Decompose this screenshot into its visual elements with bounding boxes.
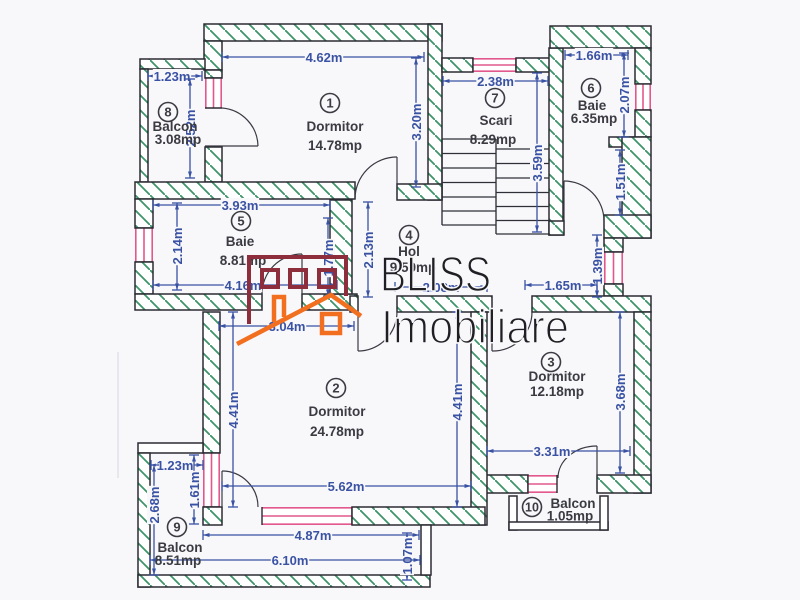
svg-text:8.29mp: 8.29mp [470, 132, 517, 147]
svg-text:7: 7 [491, 91, 498, 106]
svg-text:Dormitor: Dormitor [529, 369, 587, 384]
svg-text:9: 9 [173, 520, 180, 535]
svg-text:1.23m: 1.23m [154, 69, 191, 84]
svg-text:24.78mp: 24.78mp [310, 424, 364, 439]
svg-text:1.66m: 1.66m [576, 48, 613, 63]
svg-text:4.41m: 4.41m [226, 392, 241, 429]
svg-text:6.35mp: 6.35mp [571, 111, 618, 126]
svg-text:10: 10 [525, 501, 539, 515]
svg-text:14.78mp: 14.78mp [308, 138, 362, 153]
svg-text:3.20m: 3.20m [409, 104, 424, 141]
svg-text:3.59m: 3.59m [530, 145, 545, 182]
svg-text:1.07m: 1.07m [400, 538, 415, 575]
svg-text:1.51m: 1.51m [613, 164, 628, 201]
svg-text:3.08mp: 3.08mp [155, 132, 202, 147]
svg-text:3.68m: 3.68m [613, 374, 628, 411]
svg-text:2.07m: 2.07m [617, 77, 632, 114]
svg-text:Scari: Scari [479, 113, 512, 128]
svg-text:BLISS: BLISS [380, 248, 491, 302]
svg-text:5.62m: 5.62m [328, 479, 365, 494]
svg-text:2.68m: 2.68m [147, 487, 162, 524]
svg-text:1.39m: 1.39m [590, 248, 605, 285]
svg-text:1.23m: 1.23m [157, 458, 194, 473]
svg-text:1: 1 [326, 96, 333, 111]
svg-text:4.41m: 4.41m [450, 384, 465, 421]
svg-text:Imobiliare: Imobiliare [381, 300, 569, 353]
svg-text:2.13m: 2.13m [361, 232, 376, 269]
svg-text:1.61m: 1.61m [187, 472, 202, 509]
svg-text:3: 3 [547, 355, 554, 370]
svg-text:1.65m: 1.65m [545, 278, 582, 293]
svg-text:6.10m: 6.10m [272, 553, 309, 568]
svg-text:8: 8 [164, 105, 171, 120]
svg-text:Dormitor: Dormitor [307, 119, 365, 134]
svg-text:4: 4 [405, 228, 413, 243]
svg-text:Dormitor: Dormitor [309, 404, 367, 419]
svg-text:12.18mp: 12.18mp [530, 384, 584, 399]
svg-text:8.51mp: 8.51mp [155, 553, 202, 568]
svg-text:4.16m: 4.16m [225, 278, 262, 293]
svg-text:1.05mp: 1.05mp [547, 509, 594, 524]
svg-text:2.14m: 2.14m [170, 228, 185, 265]
svg-text:4.62m: 4.62m [306, 50, 343, 65]
svg-text:5: 5 [237, 214, 244, 229]
svg-text:Baie: Baie [226, 234, 255, 249]
svg-text:6: 6 [587, 81, 594, 96]
svg-text:3.31m: 3.31m [534, 444, 571, 459]
svg-text:2.38m: 2.38m [477, 74, 514, 89]
svg-text:4.87m: 4.87m [295, 528, 332, 543]
svg-text:2: 2 [332, 381, 339, 396]
svg-text:3.93m: 3.93m [222, 198, 259, 213]
